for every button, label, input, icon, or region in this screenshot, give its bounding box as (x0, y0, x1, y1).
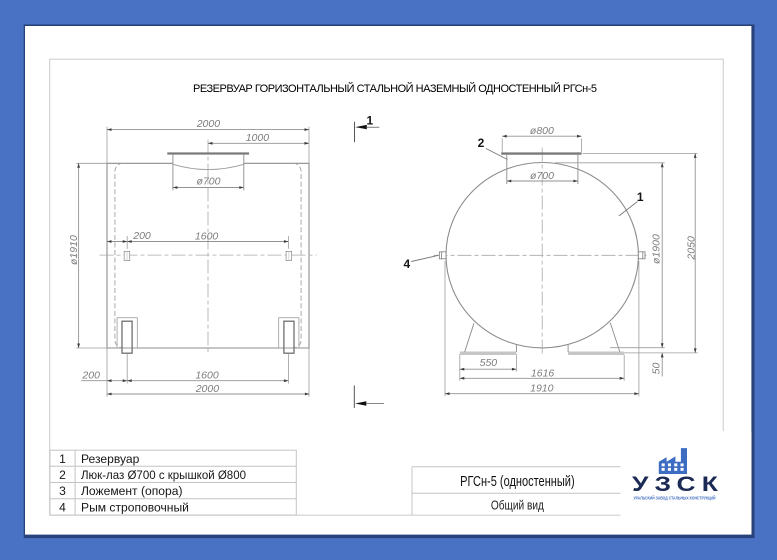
svg-text:1616: 1616 (531, 367, 555, 379)
svg-text:ø1910: ø1910 (68, 235, 80, 265)
svg-text:3: 3 (59, 484, 66, 498)
svg-text:1600: 1600 (195, 370, 219, 382)
svg-text:1600: 1600 (195, 230, 219, 242)
svg-text:Люк-лаз Ø700 с крышкой Ø800: Люк-лаз Ø700 с крышкой Ø800 (81, 468, 246, 482)
svg-text:200: 200 (132, 230, 151, 242)
svg-text:Резервуар: Резервуар (81, 452, 140, 466)
svg-text:УЗСК: УЗСК (632, 472, 724, 496)
svg-text:2050: 2050 (685, 236, 697, 261)
svg-text:2000: 2000 (195, 383, 220, 395)
svg-text:ø800: ø800 (530, 125, 554, 137)
svg-text:2000: 2000 (196, 118, 221, 130)
svg-text:РЕЗЕРВУАР ГОРИЗОНТАЛЬНЫЙ СТАЛЬ: РЕЗЕРВУАР ГОРИЗОНТАЛЬНЫЙ СТАЛЬНОЙ НАЗЕМН… (193, 82, 597, 95)
svg-text:4: 4 (403, 257, 410, 271)
svg-text:1: 1 (59, 452, 66, 466)
svg-text:2: 2 (59, 468, 66, 482)
svg-text:550: 550 (480, 357, 498, 369)
svg-text:ø700: ø700 (197, 176, 221, 188)
svg-text:1: 1 (637, 190, 644, 204)
svg-text:УРАЛЬСКИЙ ЗАВОД СТАЛЬНЫХ КОНСТ: УРАЛЬСКИЙ ЗАВОД СТАЛЬНЫХ КОНСТРУКЦИЙ (634, 493, 716, 500)
svg-text:ø1900: ø1900 (651, 234, 663, 264)
svg-text:РГСн-5 (одностенный): РГСн-5 (одностенный) (460, 474, 575, 490)
svg-text:1910: 1910 (530, 383, 554, 395)
svg-text:Ложемент (опора): Ложемент (опора) (81, 484, 182, 498)
svg-text:4: 4 (59, 500, 66, 514)
svg-text:2: 2 (478, 136, 485, 150)
svg-text:Рым строповочный: Рым строповочный (81, 500, 189, 514)
svg-text:1: 1 (367, 114, 374, 128)
svg-text:Общий вид: Общий вид (491, 498, 544, 513)
svg-text:200: 200 (81, 369, 100, 381)
svg-text:ø700: ø700 (530, 170, 554, 182)
svg-text:1000: 1000 (246, 132, 270, 144)
svg-text:50: 50 (650, 363, 662, 375)
